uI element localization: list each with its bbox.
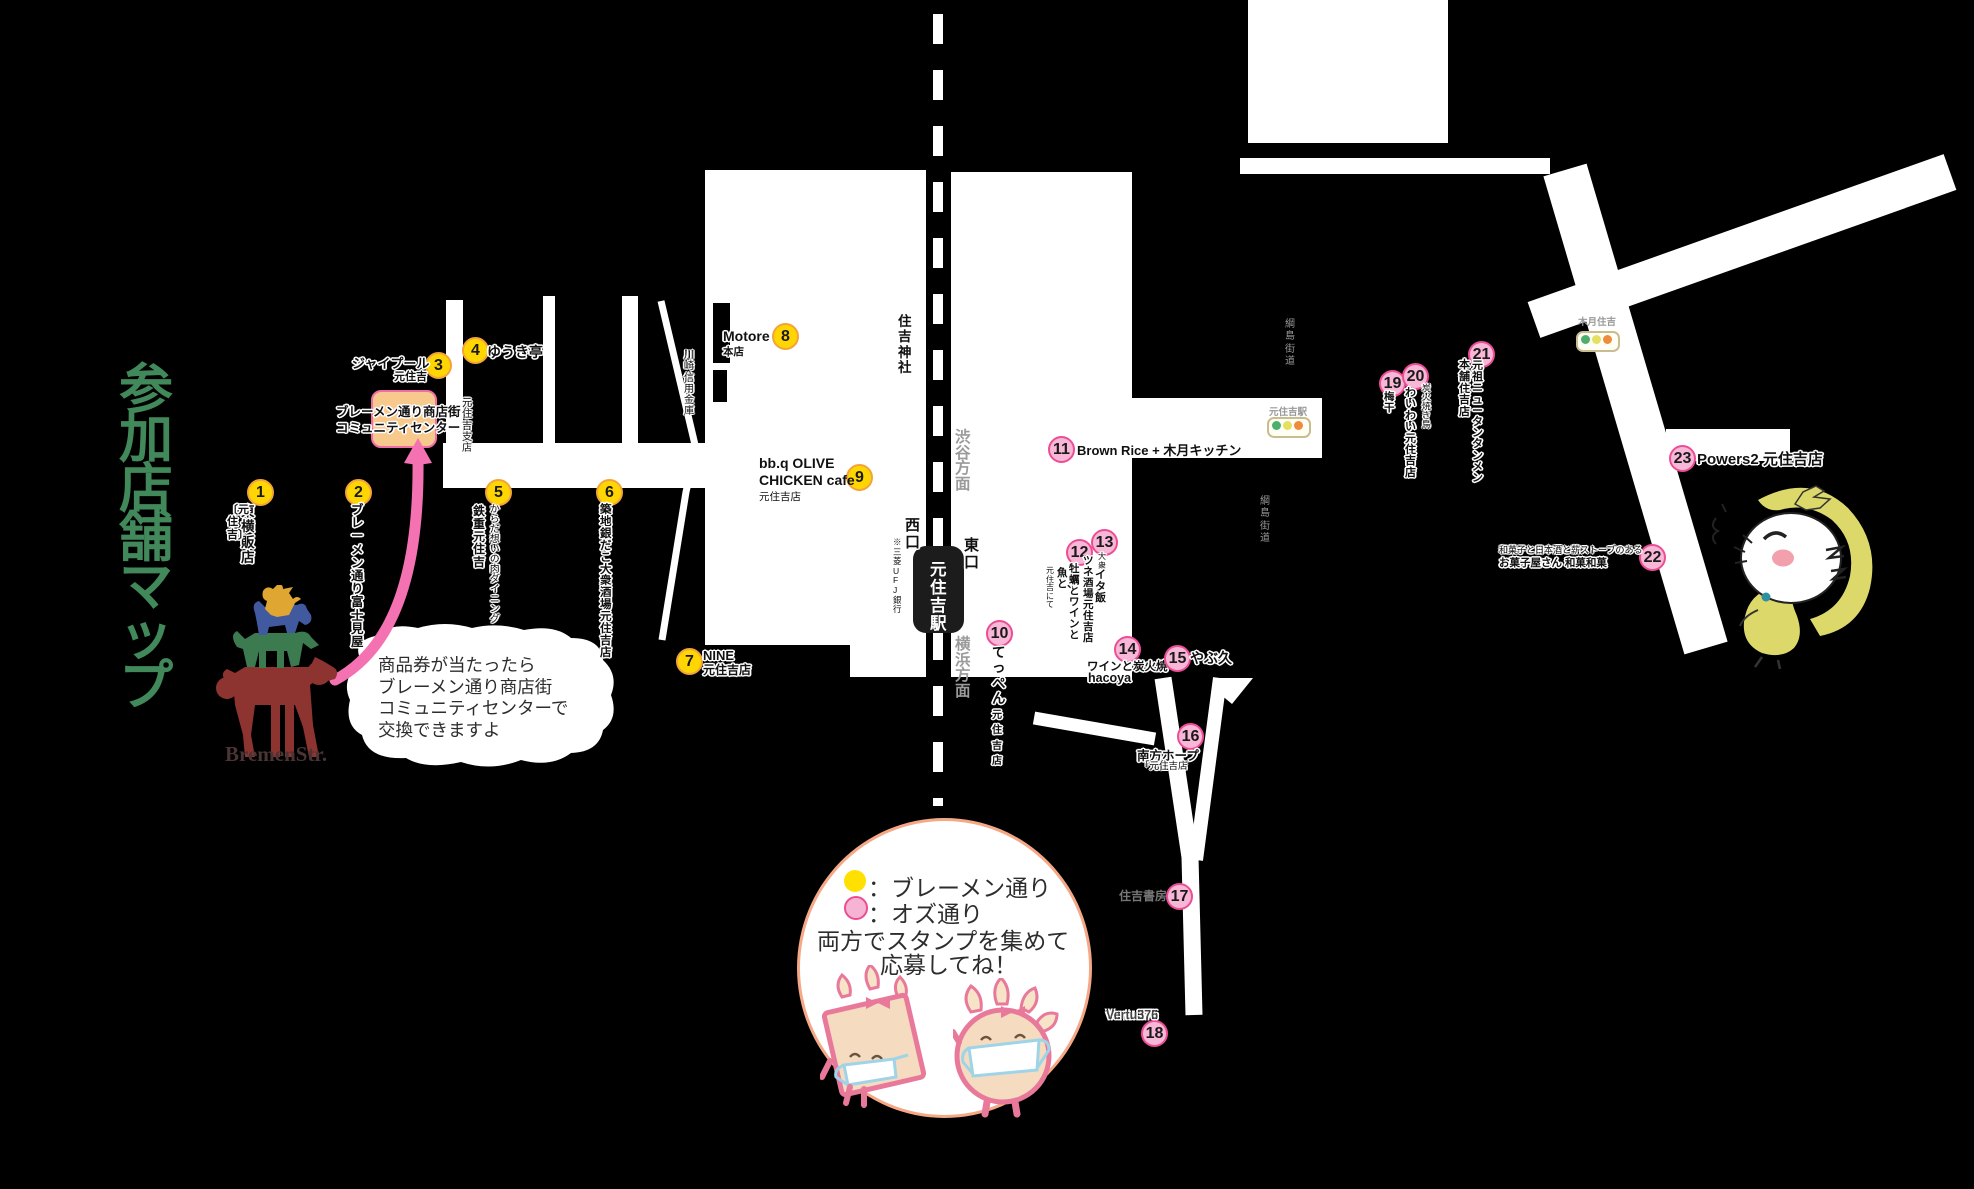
- svg-text:BremenStr.: BremenStr.: [225, 742, 327, 766]
